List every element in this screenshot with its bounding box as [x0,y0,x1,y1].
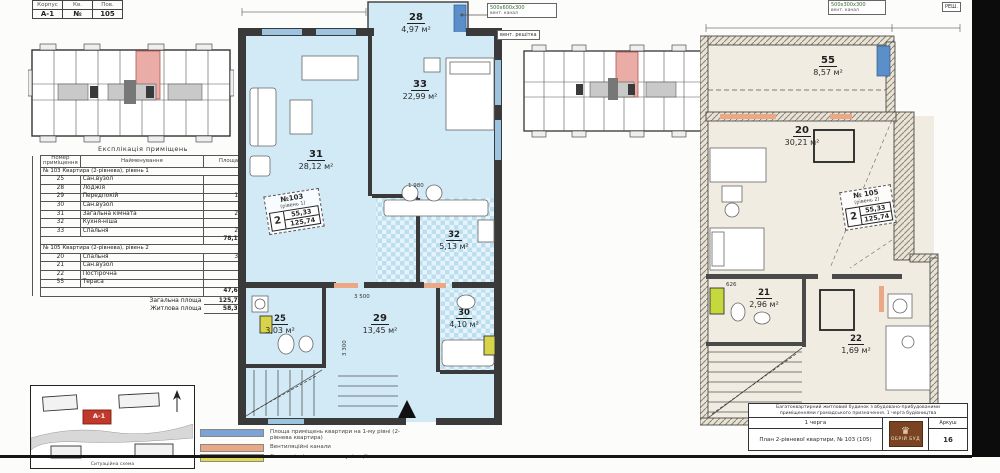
crown-icon: ♛ [901,427,910,437]
legend-item: Площа приміщень квартири на 1-му рівні (… [200,429,420,442]
photo-edge-black-bar [972,0,1000,457]
corner-value-floor: 105 [93,10,123,19]
apartment-badge-105: № 105 (рівень 2) 2 55,33 125,74 [839,184,896,231]
legend: Площа приміщень квартири на 1-му рівні (… [200,429,420,464]
vent-type-note: вент. канал [831,8,883,13]
logo-text: ОБРІЙ БУД [891,437,920,442]
vent-callout-2: 500х300х300 вент. канал [828,0,886,15]
legend-item: Вентиляційні канали [200,444,420,452]
sheet-number: 16 [929,429,967,450]
vent-channel [830,114,852,119]
total-label: Житлова площа [41,305,204,314]
room-name: Постірочна [80,270,203,279]
room-name: Кухня-ніша [80,219,203,228]
room-number: 32 [41,219,81,228]
room-number: 31 [41,210,81,219]
vent-callout: 500х600х300 вент. канал [487,3,557,18]
sheet-label: Аркуш [929,418,967,429]
room-name: Передпокій [80,193,203,202]
dimension: 626 [726,282,737,288]
section-header: № 105 Квартира (2-рівнева), рівень 2 [41,245,254,254]
overview-plan-left [28,40,234,146]
corner-value-building: А-1 [33,10,63,19]
room-name: Спальня [80,253,203,262]
room-number: 28 [41,185,81,194]
drawing-sheet: Корпус Кв. Пов. А-1 № 105 [0,0,1000,473]
dimension: 3 300 [342,340,348,356]
room-name: Сан.вузол [80,262,203,271]
vent-channel [334,283,358,288]
room-name: Лоджія [80,185,203,194]
corner-info-table: Корпус Кв. Пов. А-1 № 105 [32,0,123,19]
vent-channel [879,286,884,312]
north-arrow-icon [173,390,181,412]
legend-label: Вентиляційні канали [270,444,331,450]
vent-channel [720,114,776,119]
vent-shaft-box [877,46,890,76]
corner-label: Пов. [93,1,123,10]
dimension: 3 500 [354,294,370,300]
sheet-bottom-border [0,455,972,458]
section-header: № 103 Квартира (2-рівнева), рівень 1 [41,167,254,176]
explication-table: Експлікація приміщень Номер приміщення Н… [32,145,254,314]
legend-swatch-orange [200,444,264,452]
col-header-number: Номер приміщення [41,156,81,168]
room-name: Сан.вузол [80,176,203,185]
room-name: Тераса [80,279,203,288]
plumbing-shaft [484,336,495,355]
room-number: 22 [41,270,81,279]
room-number: 30 [41,202,81,211]
developer-logo: ♛ ОБРІЙ БУД [889,421,923,447]
room-number: 29 [41,193,81,202]
floor-plan-level2: 558,57 м² 2030,21 м² 212,96 м² 221,69 м²… [700,0,968,432]
total-label: Загальна площа [41,296,204,305]
room-number: 25 [41,176,81,185]
room-number: 21 [41,262,81,271]
project-description-line1: Багатоквартирний житловий будинок з вбуд… [752,405,964,411]
corner-label: Корпус [33,1,63,10]
grille-callout-2: РЕШ. [942,2,961,12]
grille-note: вент. решітка [500,32,537,38]
dimension: 1 980 [408,183,424,189]
corner-value-apartment: № [63,10,93,19]
drawing-title: План 2-рівневої квартири, № 103 (105) [749,429,882,450]
project-stage: 1 черга [749,418,882,429]
explication-title: Експлікація приміщень [32,145,254,153]
grille-callout: вент. решітка [497,30,540,40]
room-name: Сан.вузол [80,202,203,211]
title-block: Багатоквартирний житловий будинок з вбуд… [748,403,968,451]
boiler-shaft [710,288,724,314]
room-number: 33 [41,227,81,236]
room-number: 20 [41,253,81,262]
room-name: Спальня [80,227,203,236]
room-number: 55 [41,279,81,288]
corner-label: Кв. [63,1,93,10]
room-name: Загальна кімната [80,210,203,219]
plumbing-shaft [260,316,272,333]
vent-type-note: вент. канал [490,11,554,16]
project-description-line2: приміщеннями громадського призначення. 1… [752,411,964,417]
col-header-name: Найменування [80,156,203,168]
floor-plan-level1: 284,97 м² 3128,12 м² 3322,99 м² 325,13 м… [238,0,510,432]
legend-swatch-blue [200,429,264,437]
grille-note: РЕШ. [945,4,958,10]
vent-channel [424,283,446,288]
site-marker-label: А-1 [85,412,113,420]
site-plan-caption: Ситуаційна схема [31,462,194,467]
callout-leader-line [460,10,488,20]
overview-plan-right [520,42,706,140]
legend-label: Площа приміщень квартири на 1-му рівні (… [270,429,420,442]
